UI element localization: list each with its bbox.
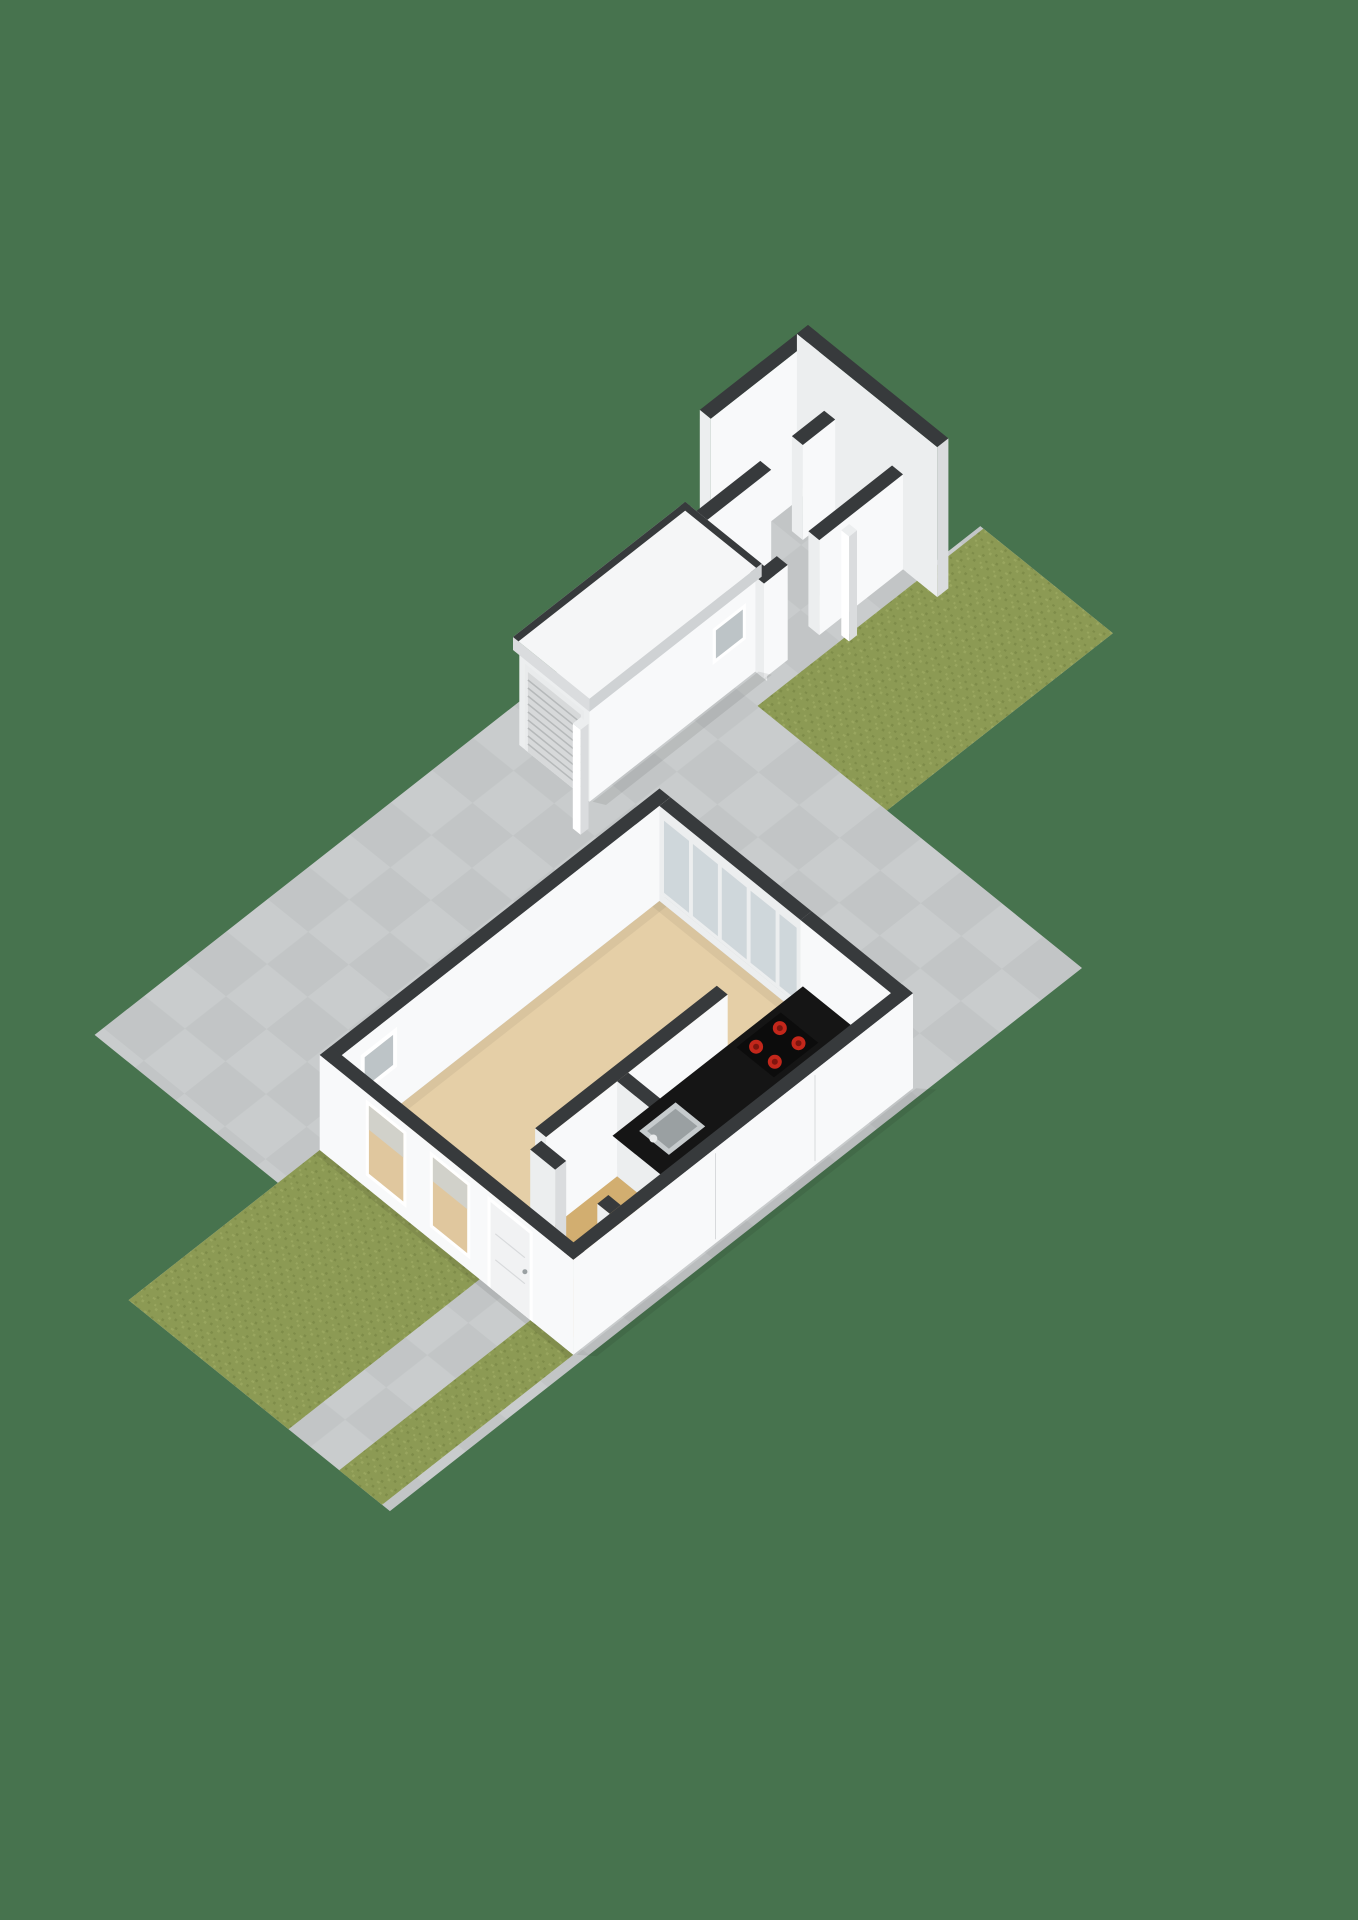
burner-1-core bbox=[753, 1044, 759, 1050]
floorplan-stage bbox=[0, 0, 1358, 1920]
yard-wall-n2-end bbox=[792, 436, 803, 540]
burner-3-core bbox=[777, 1025, 783, 1031]
fence-post-mid-face2 bbox=[581, 724, 589, 835]
glass-panel-5 bbox=[780, 914, 797, 1000]
fence-post-mid-face1 bbox=[573, 724, 581, 835]
boundary-wall-side-end bbox=[937, 438, 948, 597]
yard-wall-s2-end bbox=[808, 531, 819, 635]
fence-post-back-face2 bbox=[849, 530, 857, 641]
yard-wall-s1-face bbox=[764, 565, 788, 679]
burner-2-core bbox=[772, 1059, 778, 1065]
fence-post-back-face1 bbox=[841, 530, 849, 641]
kitchen-faucet bbox=[649, 1135, 657, 1143]
floorplan-canvas bbox=[0, 0, 1358, 1920]
burner-4-core bbox=[796, 1040, 802, 1046]
front-door-handle bbox=[522, 1269, 527, 1274]
